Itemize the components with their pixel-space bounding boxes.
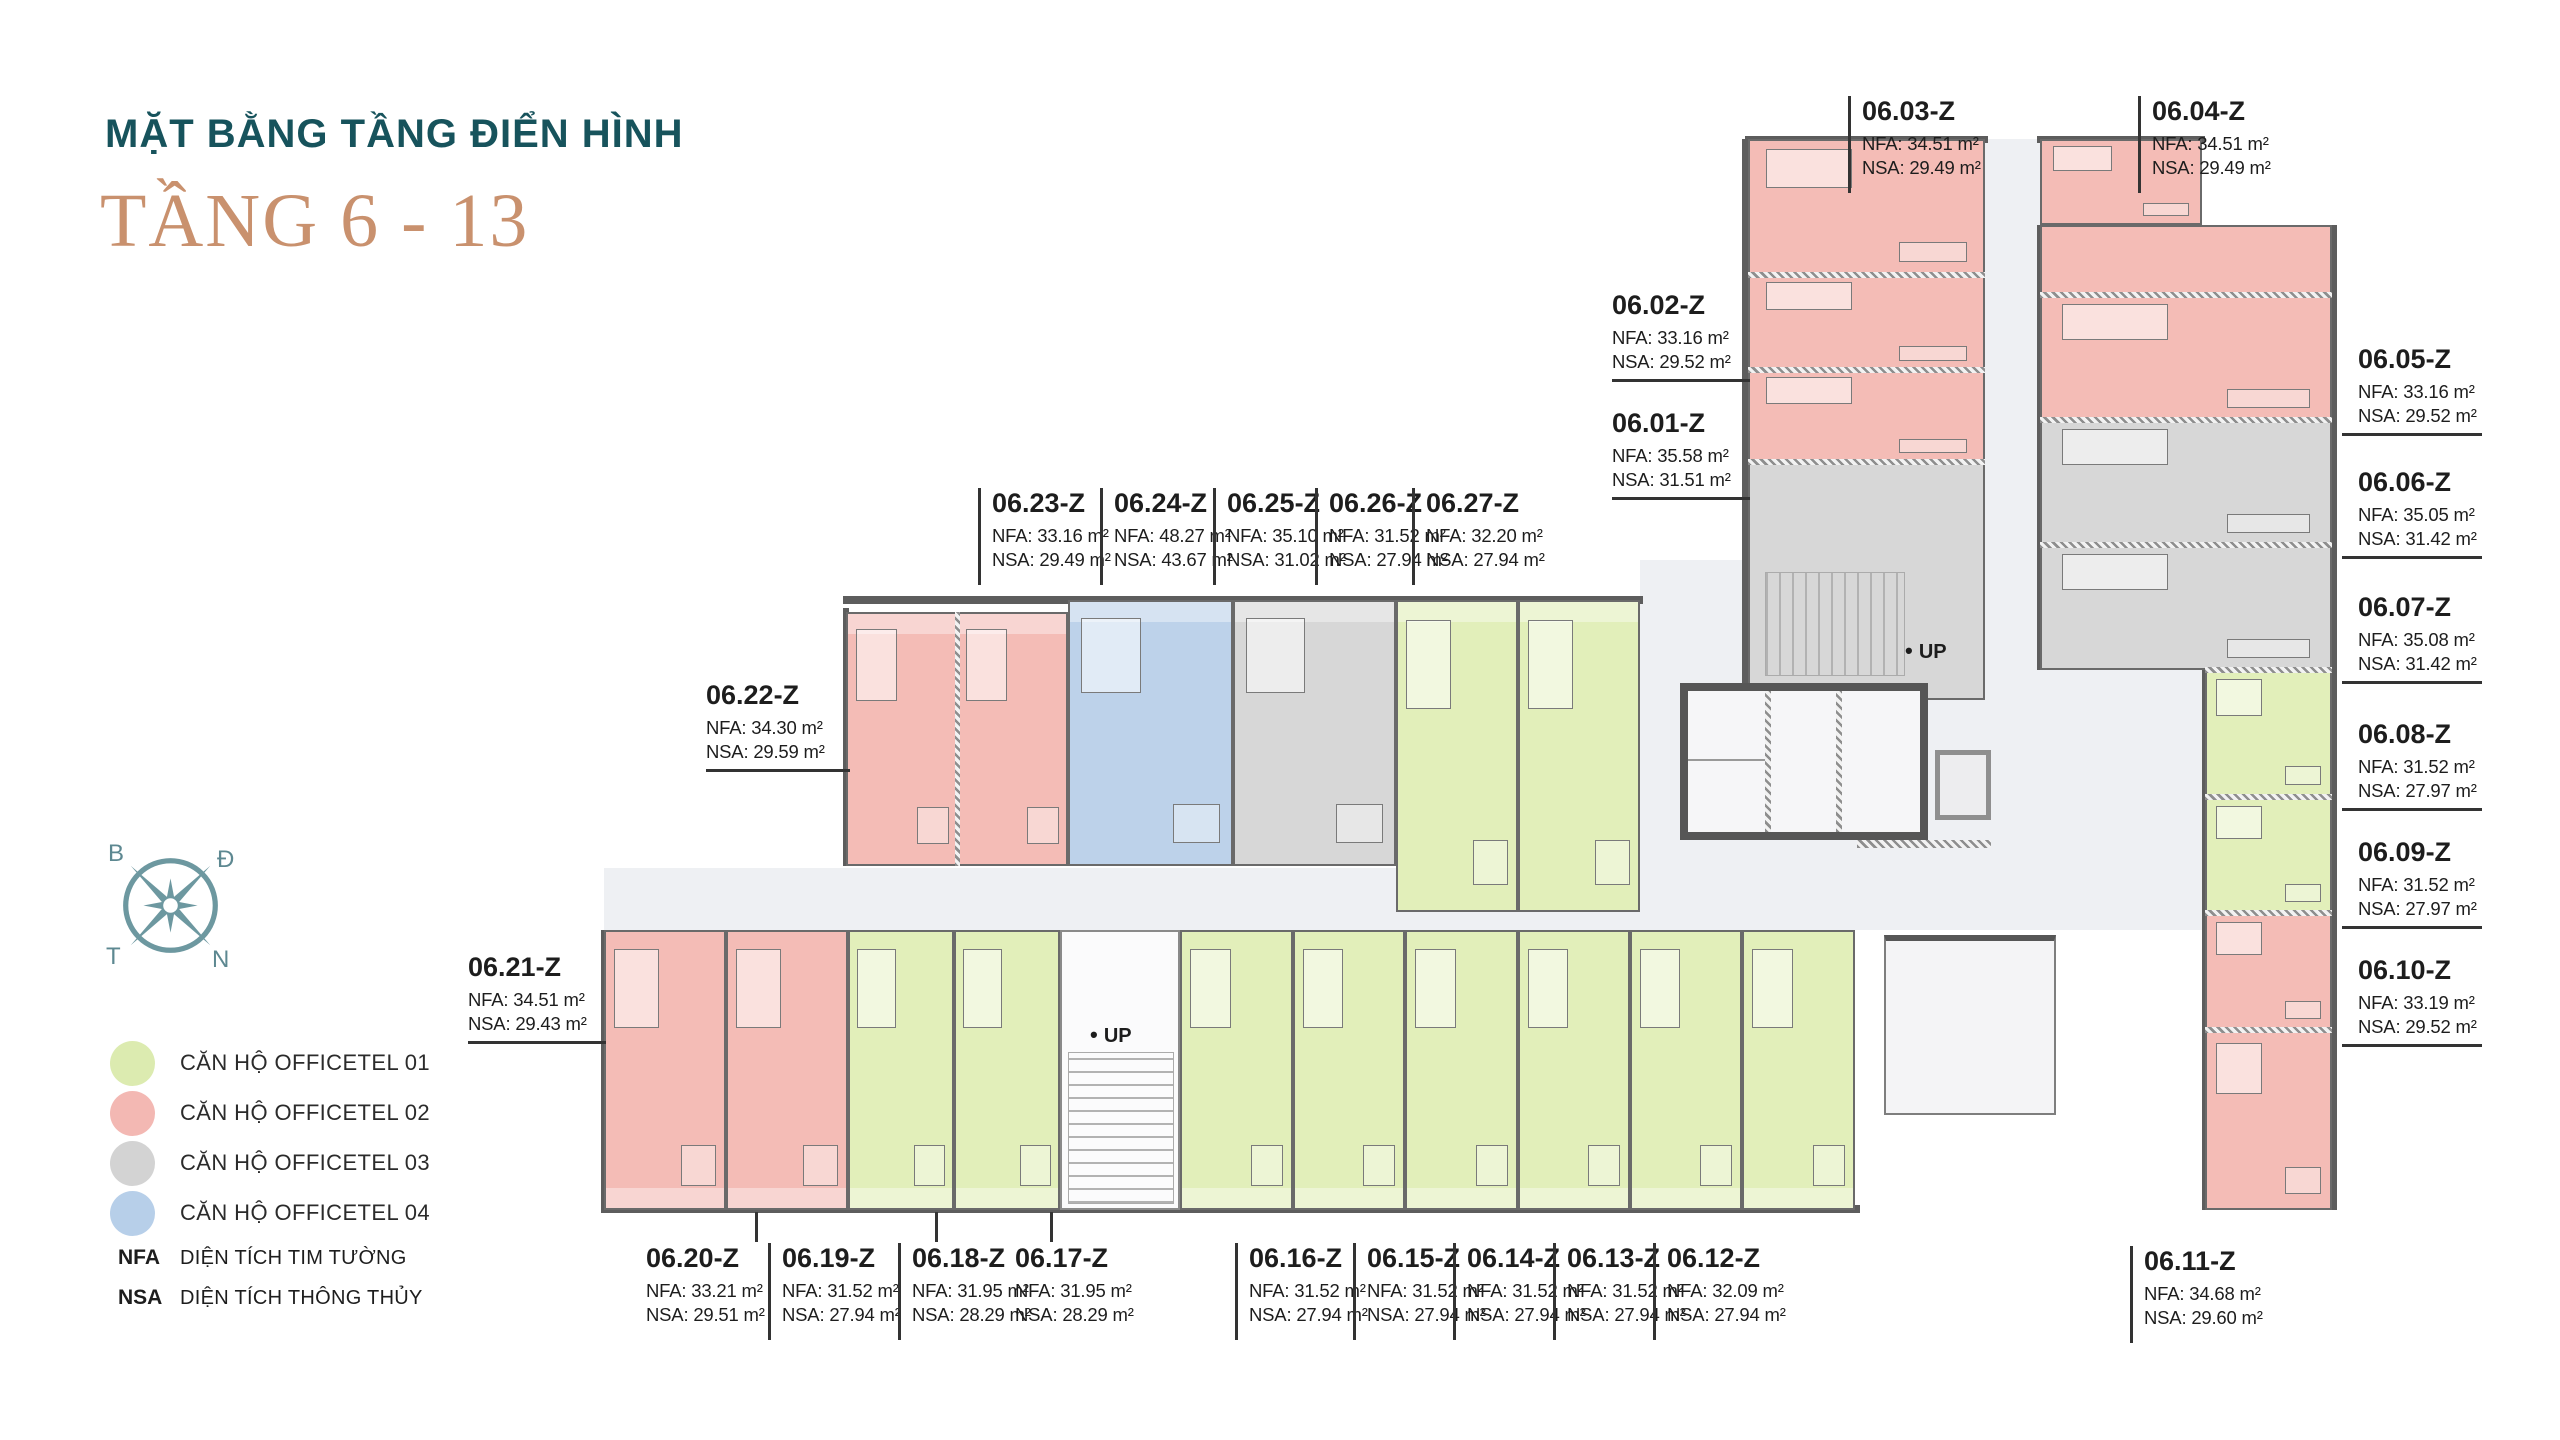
unit-label-06-27: 06.27-Z NFA: 32.20 m² NSA: 27.94 m² bbox=[1412, 488, 1545, 585]
unit-nsa: NSA: 27.94 m² bbox=[782, 1303, 901, 1327]
unit-code: 06.03-Z bbox=[1862, 96, 1981, 127]
unit-region-06-14 bbox=[1518, 930, 1630, 1210]
compass: B Đ T N bbox=[100, 838, 245, 978]
unit-nsa: NSA: 27.97 m² bbox=[2358, 897, 2518, 921]
abbr-definition: DIỆN TÍCH THÔNG THỦY bbox=[180, 1287, 423, 1310]
unit-label-06-09: 06.09-Z NFA: 31.52 m² NSA: 27.97 m² bbox=[2358, 837, 2518, 922]
unit-label-06-20: 06.20-Z NFA: 33.21 m² NSA: 29.51 m² bbox=[646, 1243, 765, 1328]
unit-nsa: NSA: 31.42 m² bbox=[2358, 652, 2518, 676]
unit-nsa: NSA: 27.97 m² bbox=[2358, 779, 2518, 803]
unit-label-06-12: 06.12-Z NFA: 32.09 m² NSA: 27.94 m² bbox=[1653, 1243, 1786, 1340]
legend-item: CĂN HỘ OFFICETEL 02 bbox=[110, 1090, 430, 1136]
unit-label-06-21: 06.21-Z NFA: 34.51 m² NSA: 29.43 m² bbox=[468, 952, 602, 1037]
compass-label-south: N bbox=[212, 946, 229, 974]
unit-nfa: NFA: 31.52 m² bbox=[2358, 873, 2518, 897]
unit-label-06-05: 06.05-Z NFA: 33.16 m² NSA: 29.52 m² bbox=[2358, 344, 2518, 429]
unit-code: 06.07-Z bbox=[2358, 592, 2518, 623]
unit-code: 06.20-Z bbox=[646, 1243, 765, 1274]
unit-nsa: NSA: 29.52 m² bbox=[1612, 350, 1746, 374]
page-subtitle: TẦNG 6 - 13 bbox=[100, 178, 529, 265]
page-title: MẶT BẰNG TẦNG ĐIỂN HÌNH bbox=[105, 112, 684, 157]
unit-label-06-01: 06.01-Z NFA: 35.58 m² NSA: 31.51 m² bbox=[1612, 408, 1746, 493]
unit-code: 06.05-Z bbox=[2358, 344, 2518, 375]
unit-nfa: NFA: 31.95 m² bbox=[1015, 1279, 1134, 1303]
legend-abbr-nsa: NSA DIỆN TÍCH THÔNG THỦY bbox=[118, 1286, 423, 1310]
unit-nfa: NFA: 33.16 m² bbox=[1612, 326, 1746, 350]
unit-label-06-16: 06.16-Z NFA: 31.52 m² NSA: 27.94 m² bbox=[1235, 1243, 1368, 1340]
unit-code: 06.27-Z bbox=[1426, 488, 1545, 519]
unit-nsa: NSA: 27.94 m² bbox=[1426, 548, 1545, 572]
unit-code: 06.11-Z bbox=[2144, 1246, 2263, 1277]
unit-nfa: NFA: 33.19 m² bbox=[2358, 991, 2518, 1015]
unit-region-06-13 bbox=[1630, 930, 1742, 1210]
unit-nfa: NFA: 32.20 m² bbox=[1426, 524, 1545, 548]
corridor-right bbox=[2040, 670, 2205, 930]
unit-region-06-21 bbox=[604, 930, 726, 1210]
compass-label-north: B bbox=[108, 840, 124, 868]
unit-region-06-16 bbox=[1293, 930, 1405, 1210]
unit-nfa: NFA: 33.16 m² bbox=[2358, 380, 2518, 404]
unit-region-06-15 bbox=[1405, 930, 1518, 1210]
floor-plan-page: MẶT BẰNG TẦNG ĐIỂN HÌNH TẦNG 6 - 13 B Đ … bbox=[0, 0, 2560, 1440]
unit-region-06-06 bbox=[2040, 420, 2332, 545]
staircase bbox=[1068, 1052, 1174, 1204]
hatched-wall bbox=[2040, 292, 2332, 298]
compass-label-east: Đ bbox=[217, 846, 234, 874]
unit-code: 06.23-Z bbox=[992, 488, 1111, 519]
hatched-wall bbox=[1748, 459, 1985, 465]
legend-item: CĂN HỘ OFFICETEL 03 bbox=[110, 1140, 430, 1186]
unit-label-06-23: 06.23-Z NFA: 33.16 m² NSA: 29.49 m² bbox=[978, 488, 1111, 585]
hatched-wall bbox=[2205, 667, 2332, 673]
unit-nsa: NSA: 29.49 m² bbox=[992, 548, 1111, 572]
unit-nfa: NFA: 34.51 m² bbox=[1862, 132, 1981, 156]
unit-nfa: NFA: 31.52 m² bbox=[2358, 755, 2518, 779]
compass-label-west: T bbox=[106, 943, 121, 971]
unit-label-06-17: 06.17-Z NFA: 31.95 m² NSA: 28.29 m² bbox=[1015, 1243, 1134, 1328]
staircase bbox=[1765, 572, 1905, 676]
legend-swatch-officetel-03 bbox=[110, 1141, 155, 1186]
unit-code: 06.21-Z bbox=[468, 952, 602, 983]
unit-code: 06.12-Z bbox=[1667, 1243, 1786, 1274]
unit-region-06-25 bbox=[1233, 600, 1396, 866]
unit-nsa: NSA: 29.60 m² bbox=[2144, 1306, 2263, 1330]
unit-nfa: NFA: 34.51 m² bbox=[2152, 132, 2271, 156]
unit-label-06-04: 06.04-Z NFA: 34.51 m² NSA: 29.49 m² bbox=[2138, 96, 2271, 193]
lobby-room bbox=[1884, 935, 2056, 1115]
unit-nfa: NFA: 31.52 m² bbox=[782, 1279, 901, 1303]
unit-region-06-27 bbox=[1518, 600, 1640, 912]
unit-nfa: NFA: 34.30 m² bbox=[706, 716, 846, 740]
unit-code: 06.17-Z bbox=[1015, 1243, 1134, 1274]
up-label: UP bbox=[1905, 638, 1947, 664]
unit-region-06-23 bbox=[957, 612, 1068, 866]
unit-nsa: NSA: 31.42 m² bbox=[2358, 527, 2518, 551]
unit-region-06-08 bbox=[2205, 670, 2332, 797]
unit-label-06-06: 06.06-Z NFA: 35.05 m² NSA: 31.42 m² bbox=[2358, 467, 2518, 552]
unit-region-06-20 bbox=[726, 930, 848, 1210]
unit-region-06-11 bbox=[2205, 1030, 2332, 1210]
unit-code: 06.06-Z bbox=[2358, 467, 2518, 498]
leader-line bbox=[935, 1212, 938, 1242]
elevator-core bbox=[1680, 683, 1928, 840]
hatched-wall bbox=[1748, 367, 1985, 373]
legend-swatch-officetel-04 bbox=[110, 1191, 155, 1236]
unit-nfa: NFA: 34.51 m² bbox=[468, 988, 602, 1012]
hatched-wall bbox=[2205, 910, 2332, 916]
unit-nfa: NFA: 33.21 m² bbox=[646, 1279, 765, 1303]
legend-swatch-officetel-01 bbox=[110, 1041, 155, 1086]
unit-label-06-03: 06.03-Z NFA: 34.51 m² NSA: 29.49 m² bbox=[1848, 96, 1981, 193]
unit-nsa: NSA: 29.49 m² bbox=[1862, 156, 1981, 180]
leader-line bbox=[755, 1212, 758, 1242]
unit-nfa: NFA: 31.95 m² bbox=[912, 1279, 1031, 1303]
unit-code: 06.08-Z bbox=[2358, 719, 2518, 750]
unit-nfa: NFA: 31.52 m² bbox=[1249, 1279, 1368, 1303]
unit-code: 06.22-Z bbox=[706, 680, 846, 711]
corridor-tower-gap bbox=[1985, 139, 2040, 699]
unit-nsa: NSA: 29.49 m² bbox=[2152, 156, 2271, 180]
unit-region-06-24 bbox=[1068, 600, 1233, 866]
unit-code: 06.04-Z bbox=[2152, 96, 2271, 127]
abbr: NFA bbox=[118, 1246, 163, 1270]
legend-item: CĂN HỘ OFFICETEL 04 bbox=[110, 1190, 430, 1236]
unit-region-06-22 bbox=[846, 612, 959, 866]
hatched-wall bbox=[2205, 794, 2332, 800]
unit-nsa: NSA: 28.29 m² bbox=[1015, 1303, 1134, 1327]
unit-region-06-02 bbox=[1748, 275, 1985, 370]
unit-region-06-04b bbox=[2040, 225, 2332, 295]
legend-abbr-nfa: NFA DIỆN TÍCH TIM TƯỜNG bbox=[118, 1246, 407, 1270]
unit-region-06-18 bbox=[954, 930, 1060, 1210]
abbr-definition: DIỆN TÍCH TIM TƯỜNG bbox=[180, 1247, 407, 1270]
unit-nfa: NFA: 35.58 m² bbox=[1612, 444, 1746, 468]
unit-region-06-05 bbox=[2040, 295, 2332, 420]
legend-label: CĂN HỘ OFFICETEL 01 bbox=[180, 1050, 430, 1076]
unit-code: 06.09-Z bbox=[2358, 837, 2518, 868]
unit-label-06-22: 06.22-Z NFA: 34.30 m² NSA: 29.59 m² bbox=[706, 680, 846, 765]
unit-nsa: NSA: 29.51 m² bbox=[646, 1303, 765, 1327]
unit-nfa: NFA: 35.05 m² bbox=[2358, 503, 2518, 527]
up-label: UP bbox=[1090, 1022, 1132, 1048]
unit-label-06-02: 06.02-Z NFA: 33.16 m² NSA: 29.52 m² bbox=[1612, 290, 1746, 375]
service-shaft bbox=[1935, 750, 1991, 820]
unit-nfa: NFA: 34.68 m² bbox=[2144, 1282, 2263, 1306]
leader-line bbox=[1050, 1212, 1053, 1242]
hatched-wall bbox=[2040, 542, 2332, 548]
unit-code: 06.19-Z bbox=[782, 1243, 901, 1274]
unit-nsa: NSA: 29.59 m² bbox=[706, 740, 846, 764]
unit-nsa: NSA: 29.43 m² bbox=[468, 1012, 602, 1036]
legend-swatch-officetel-02 bbox=[110, 1091, 155, 1136]
unit-nsa: NSA: 28.29 m² bbox=[912, 1303, 1031, 1327]
elevator-divider bbox=[1765, 691, 1771, 832]
unit-label-06-08: 06.08-Z NFA: 31.52 m² NSA: 27.97 m² bbox=[2358, 719, 2518, 804]
unit-label-06-07: 06.07-Z NFA: 35.08 m² NSA: 31.42 m² bbox=[2358, 592, 2518, 677]
unit-region-06-12 bbox=[1742, 930, 1855, 1210]
unit-region-06-10 bbox=[2205, 913, 2332, 1030]
hatched-wall bbox=[2040, 417, 2332, 423]
unit-nfa: NFA: 32.09 m² bbox=[1667, 1279, 1786, 1303]
elevator-divider bbox=[1688, 759, 1765, 761]
abbr: NSA bbox=[118, 1286, 163, 1310]
unit-nfa: NFA: 33.16 m² bbox=[992, 524, 1111, 548]
unit-nsa: NSA: 27.94 m² bbox=[1667, 1303, 1786, 1327]
unit-label-06-18: 06.18-Z NFA: 31.95 m² NSA: 28.29 m² bbox=[898, 1243, 1031, 1340]
hatched-wall bbox=[1857, 840, 1991, 848]
unit-region-06-07 bbox=[2040, 545, 2332, 670]
unit-region-06-01 bbox=[1748, 370, 1985, 462]
elevator-divider bbox=[1836, 691, 1842, 832]
hatched-wall bbox=[955, 612, 960, 866]
unit-region-06-19 bbox=[848, 930, 954, 1210]
legend-label: CĂN HỘ OFFICETEL 02 bbox=[180, 1100, 430, 1126]
unit-region-06-17 bbox=[1180, 930, 1293, 1210]
hatched-wall bbox=[1748, 272, 1985, 278]
unit-label-06-10: 06.10-Z NFA: 33.19 m² NSA: 29.52 m² bbox=[2358, 955, 2518, 1040]
legend-label: CĂN HỘ OFFICETEL 03 bbox=[180, 1150, 430, 1176]
unit-nsa: NSA: 27.94 m² bbox=[1249, 1303, 1368, 1327]
unit-nsa: NSA: 31.51 m² bbox=[1612, 468, 1746, 492]
unit-code: 06.02-Z bbox=[1612, 290, 1746, 321]
unit-nfa: NFA: 35.08 m² bbox=[2358, 628, 2518, 652]
unit-nsa: NSA: 29.52 m² bbox=[2358, 1015, 2518, 1039]
unit-code: 06.18-Z bbox=[912, 1243, 1031, 1274]
unit-label-06-19: 06.19-Z NFA: 31.52 m² NSA: 27.94 m² bbox=[768, 1243, 901, 1340]
unit-region-06-09 bbox=[2205, 797, 2332, 913]
unit-code: 06.16-Z bbox=[1249, 1243, 1368, 1274]
unit-nsa: NSA: 29.52 m² bbox=[2358, 404, 2518, 428]
unit-region-06-26 bbox=[1396, 600, 1518, 912]
unit-label-06-11: 06.11-Z NFA: 34.68 m² NSA: 29.60 m² bbox=[2130, 1246, 2263, 1343]
legend-item: CĂN HỘ OFFICETEL 01 bbox=[110, 1040, 430, 1086]
legend-label: CĂN HỘ OFFICETEL 04 bbox=[180, 1200, 430, 1226]
unit-code: 06.10-Z bbox=[2358, 955, 2518, 986]
hatched-wall bbox=[2205, 1027, 2332, 1033]
unit-code: 06.01-Z bbox=[1612, 408, 1746, 439]
